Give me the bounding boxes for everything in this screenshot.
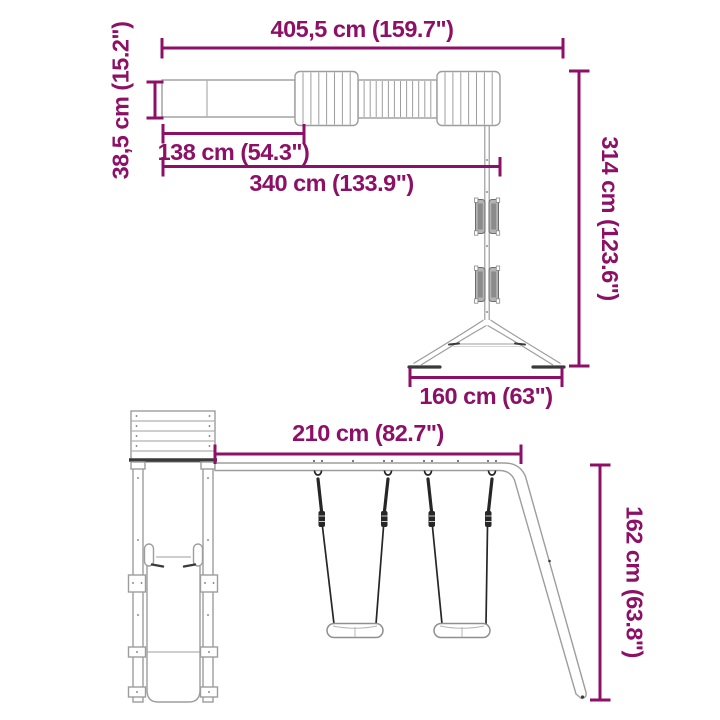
swing-seat-edge-1 xyxy=(475,198,500,235)
leg-foot-tip xyxy=(581,695,584,698)
rope-buckle xyxy=(319,511,326,527)
dim-platform-length-label: 138 cm (54.3") xyxy=(158,139,310,165)
dim-depth-label: 38,5 cm (15.2") xyxy=(108,22,134,180)
slide-rail-left xyxy=(145,544,154,566)
dim-total-width-label: 405,5 cm (159.7") xyxy=(271,16,454,42)
dim-span-length-label: 340 cm (133.9") xyxy=(249,170,413,196)
dim-beam-length-label: 210 cm (82.7") xyxy=(292,420,444,446)
swing-seat-1 xyxy=(327,624,383,638)
dim-total-depth-label: 314 cm (123.6") xyxy=(597,136,623,300)
rope-buckle xyxy=(429,511,436,527)
platform-plan xyxy=(162,80,295,117)
dim-frame-base: 160 cm (63") xyxy=(410,368,562,409)
playset-dimension-diagram: 405,5 cm (159.7") 38,5 cm (15.2") 138 cm… xyxy=(0,0,720,720)
dim-total-width: 405,5 cm (159.7") xyxy=(162,16,563,59)
rope-buckle xyxy=(485,511,492,527)
rope-buckle xyxy=(381,511,388,527)
slide-rail-right xyxy=(194,544,203,566)
beam-bolts xyxy=(313,460,497,462)
slide-front xyxy=(145,544,203,702)
swing-2 xyxy=(425,471,496,638)
dim-total-depth: 314 cm (123.6") xyxy=(569,71,623,366)
dim-depth: 38,5 cm (15.2") xyxy=(108,22,164,180)
dim-platform-length: 138 cm (54.3") xyxy=(158,124,310,165)
top-view-structure xyxy=(162,72,564,368)
front-view: 210 cm (82.7") 162 cm (63.8") xyxy=(129,411,648,702)
top-view: 405,5 cm (159.7") 38,5 cm (15.2") 138 cm… xyxy=(108,16,624,409)
swing-1 xyxy=(315,471,392,638)
dimension-diagram-page: 405,5 cm (159.7") 38,5 cm (15.2") 138 cm… xyxy=(0,0,720,720)
dim-height-label: 162 cm (63.8") xyxy=(622,506,648,658)
dim-height: 162 cm (63.8") xyxy=(590,465,648,700)
swing-seat-2 xyxy=(434,624,490,638)
dim-beam-length: 210 cm (82.7") xyxy=(215,420,521,464)
swing-seat-edge-2 xyxy=(475,266,500,303)
swing-beam-and-leg xyxy=(215,460,586,699)
dim-frame-base-label: 160 cm (63") xyxy=(419,383,552,409)
tower-roof xyxy=(129,411,217,462)
swing-a-frame xyxy=(409,320,564,367)
